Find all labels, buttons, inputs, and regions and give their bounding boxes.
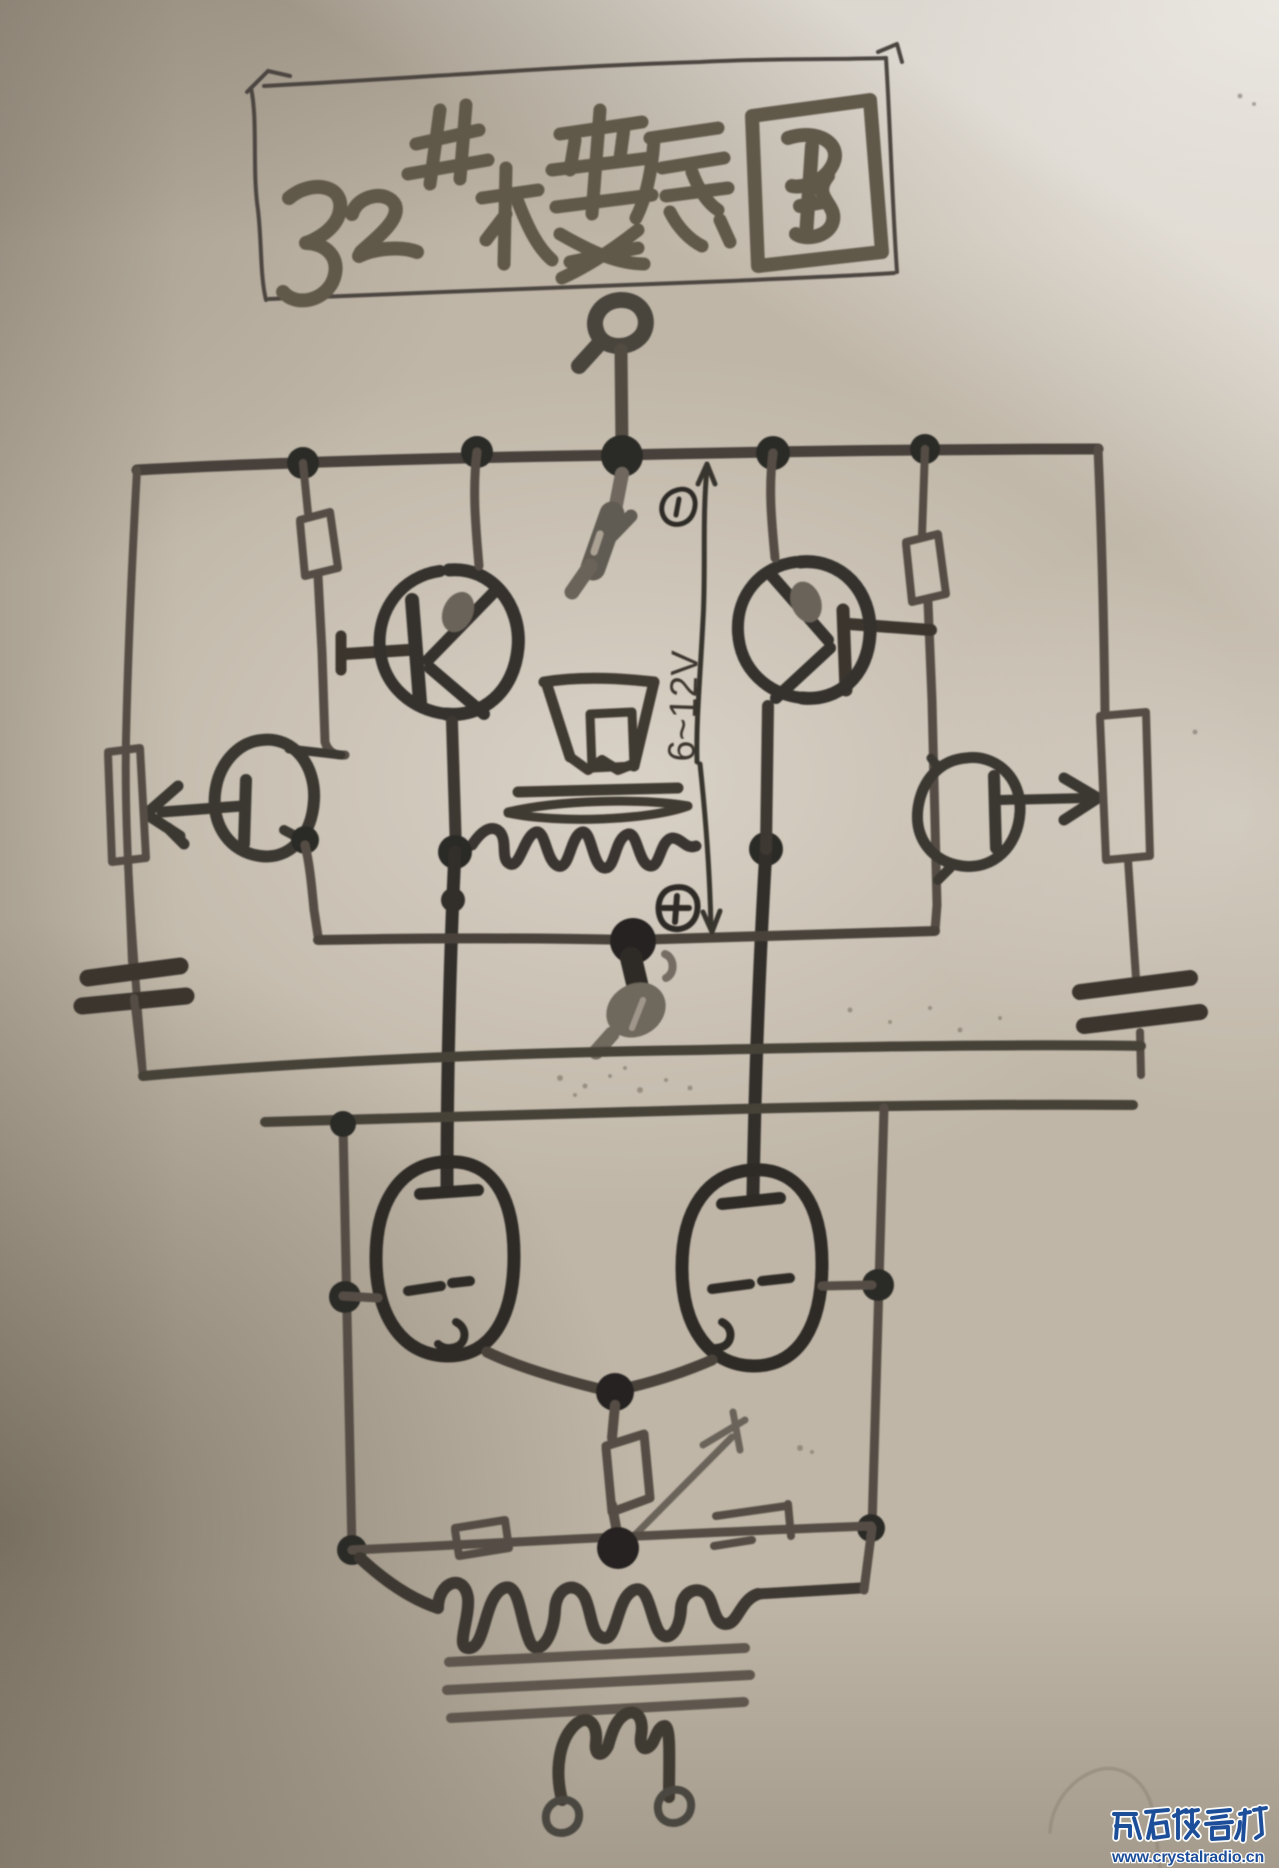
svg-text:www.crystalradio.cn: www.crystalradio.cn — [1111, 1849, 1264, 1866]
svg-text:6~12V: 6~12V — [661, 649, 707, 762]
